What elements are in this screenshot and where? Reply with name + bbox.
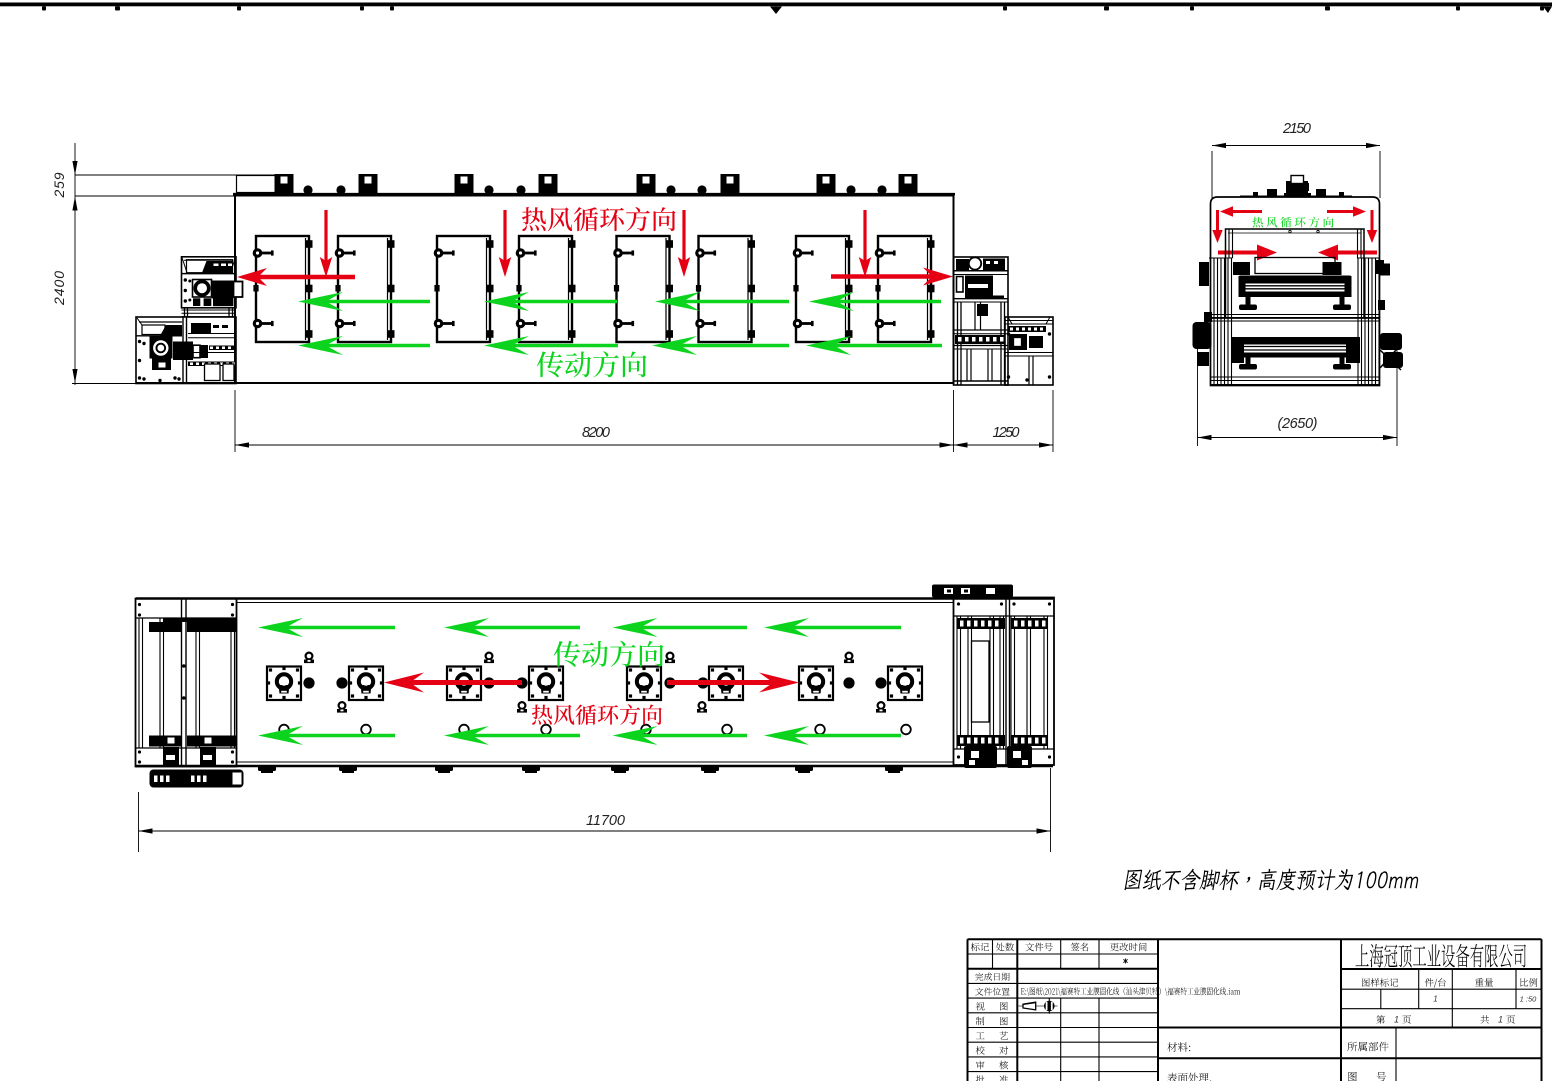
- svg-text:1: 1: [1433, 995, 1437, 1004]
- svg-text:1250: 1250: [993, 425, 1020, 441]
- svg-text:259: 259: [51, 172, 67, 198]
- svg-text:11700: 11700: [586, 813, 625, 829]
- svg-text:8200: 8200: [582, 425, 610, 441]
- svg-text:2400: 2400: [51, 271, 67, 306]
- svg-text:1: 1: [1498, 1015, 1503, 1025]
- svg-text:1: 1: [1394, 1015, 1399, 1025]
- svg-text:1 :50: 1 :50: [1520, 995, 1538, 1004]
- svg-text:(2650): (2650): [1278, 416, 1318, 432]
- svg-text:2150: 2150: [1282, 121, 1311, 137]
